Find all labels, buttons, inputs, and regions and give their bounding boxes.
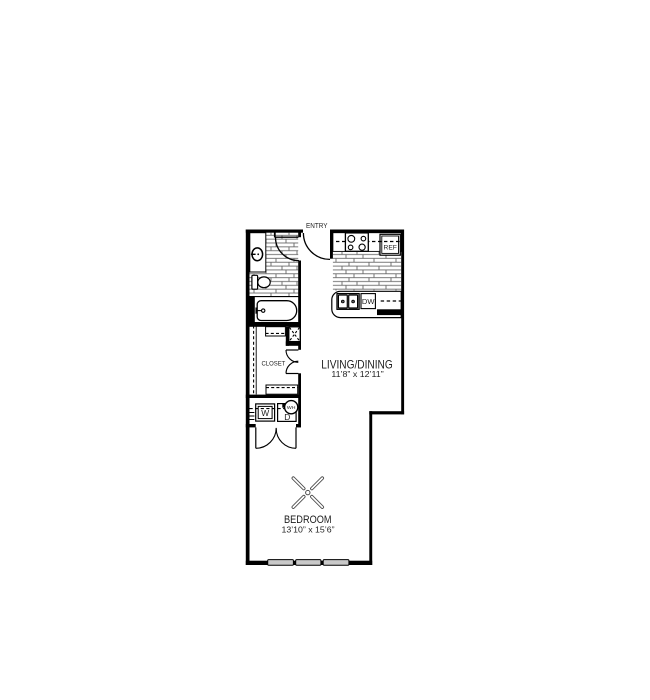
svg-text:REF: REF [384, 244, 398, 251]
svg-text:ENTRY: ENTRY [306, 223, 328, 230]
svg-text:CLOSET: CLOSET [262, 360, 286, 367]
svg-text:13’10” x 15’6”: 13’10” x 15’6” [282, 524, 335, 534]
svg-text:WH: WH [287, 405, 296, 410]
svg-text:DW: DW [362, 297, 375, 306]
svg-text:W: W [261, 408, 269, 418]
svg-text:11’8” x 12’11”: 11’8” x 12’11” [331, 369, 384, 379]
